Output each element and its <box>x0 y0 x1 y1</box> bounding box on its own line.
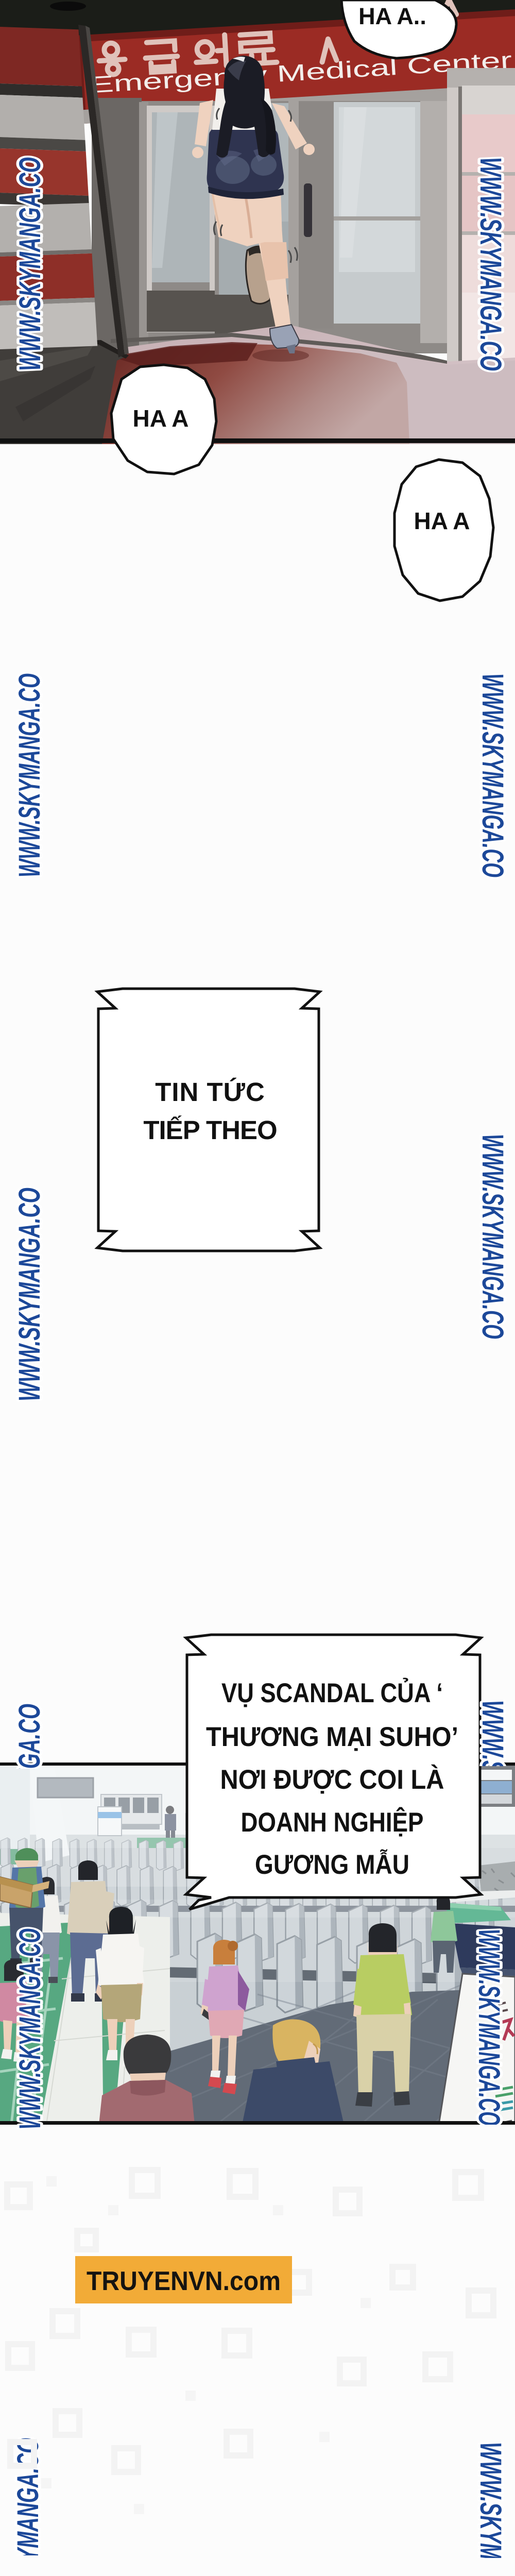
svg-text:WWW.SKYMANGA.CO: WWW.SKYMANGA.CO <box>13 1928 47 2129</box>
svg-text:WWW.SKYMANGA.CO: WWW.SKYMANGA.CO <box>472 1929 506 2125</box>
svg-text:VỤ SCANDAL CỦA ‘: VỤ SCANDAL CỦA ‘ <box>221 1677 443 1708</box>
svg-text:WWW.SKYMANGA.CO: WWW.SKYMANGA.CO <box>13 1188 46 1401</box>
svg-text:WWW.SKYMANGA.CO: WWW.SKYMANGA.CO <box>13 673 46 877</box>
svg-text:DOANH NGHIỆP: DOANH NGHIỆP <box>241 1806 424 1838</box>
svg-text:WWW.SKYMANGA.CO: WWW.SKYMANGA.CO <box>476 1700 509 1766</box>
svg-text:WWW.SKYMANGA.CO: WWW.SKYMANGA.CO <box>13 1704 46 1769</box>
svg-text:WWW.SKYMANGA.CO: WWW.SKYMANGA.CO <box>476 1134 509 1339</box>
svg-text:HA A..: HA A.. <box>358 3 426 29</box>
svg-text:WWW.SKYMANGA.CO: WWW.SKYMANGA.CO <box>474 157 507 371</box>
svg-text:GƯƠNG MẪU: GƯƠNG MẪU <box>255 1849 409 1880</box>
svg-text:TRUYENVN.com: TRUYENVN.com <box>87 2266 281 2296</box>
svg-text:HA A: HA A <box>414 507 470 534</box>
svg-text:HA A: HA A <box>132 405 188 432</box>
svg-text:TIẾP THEO: TIẾP THEO <box>143 1115 277 1145</box>
svg-text:THƯƠNG MẠI SUHO’: THƯƠNG MẠI SUHO’ <box>206 1722 458 1752</box>
svg-text:NƠI ĐƯỢC COI LÀ: NƠI ĐƯỢC COI LÀ <box>220 1764 444 1795</box>
svg-text:WWW.SKYMANGA.CO: WWW.SKYMANGA.CO <box>13 157 47 371</box>
svg-text:WWW.SKYMANGA.CO: WWW.SKYMANGA.CO <box>476 673 509 877</box>
svg-text:TIN TỨC: TIN TỨC <box>155 1077 265 1107</box>
